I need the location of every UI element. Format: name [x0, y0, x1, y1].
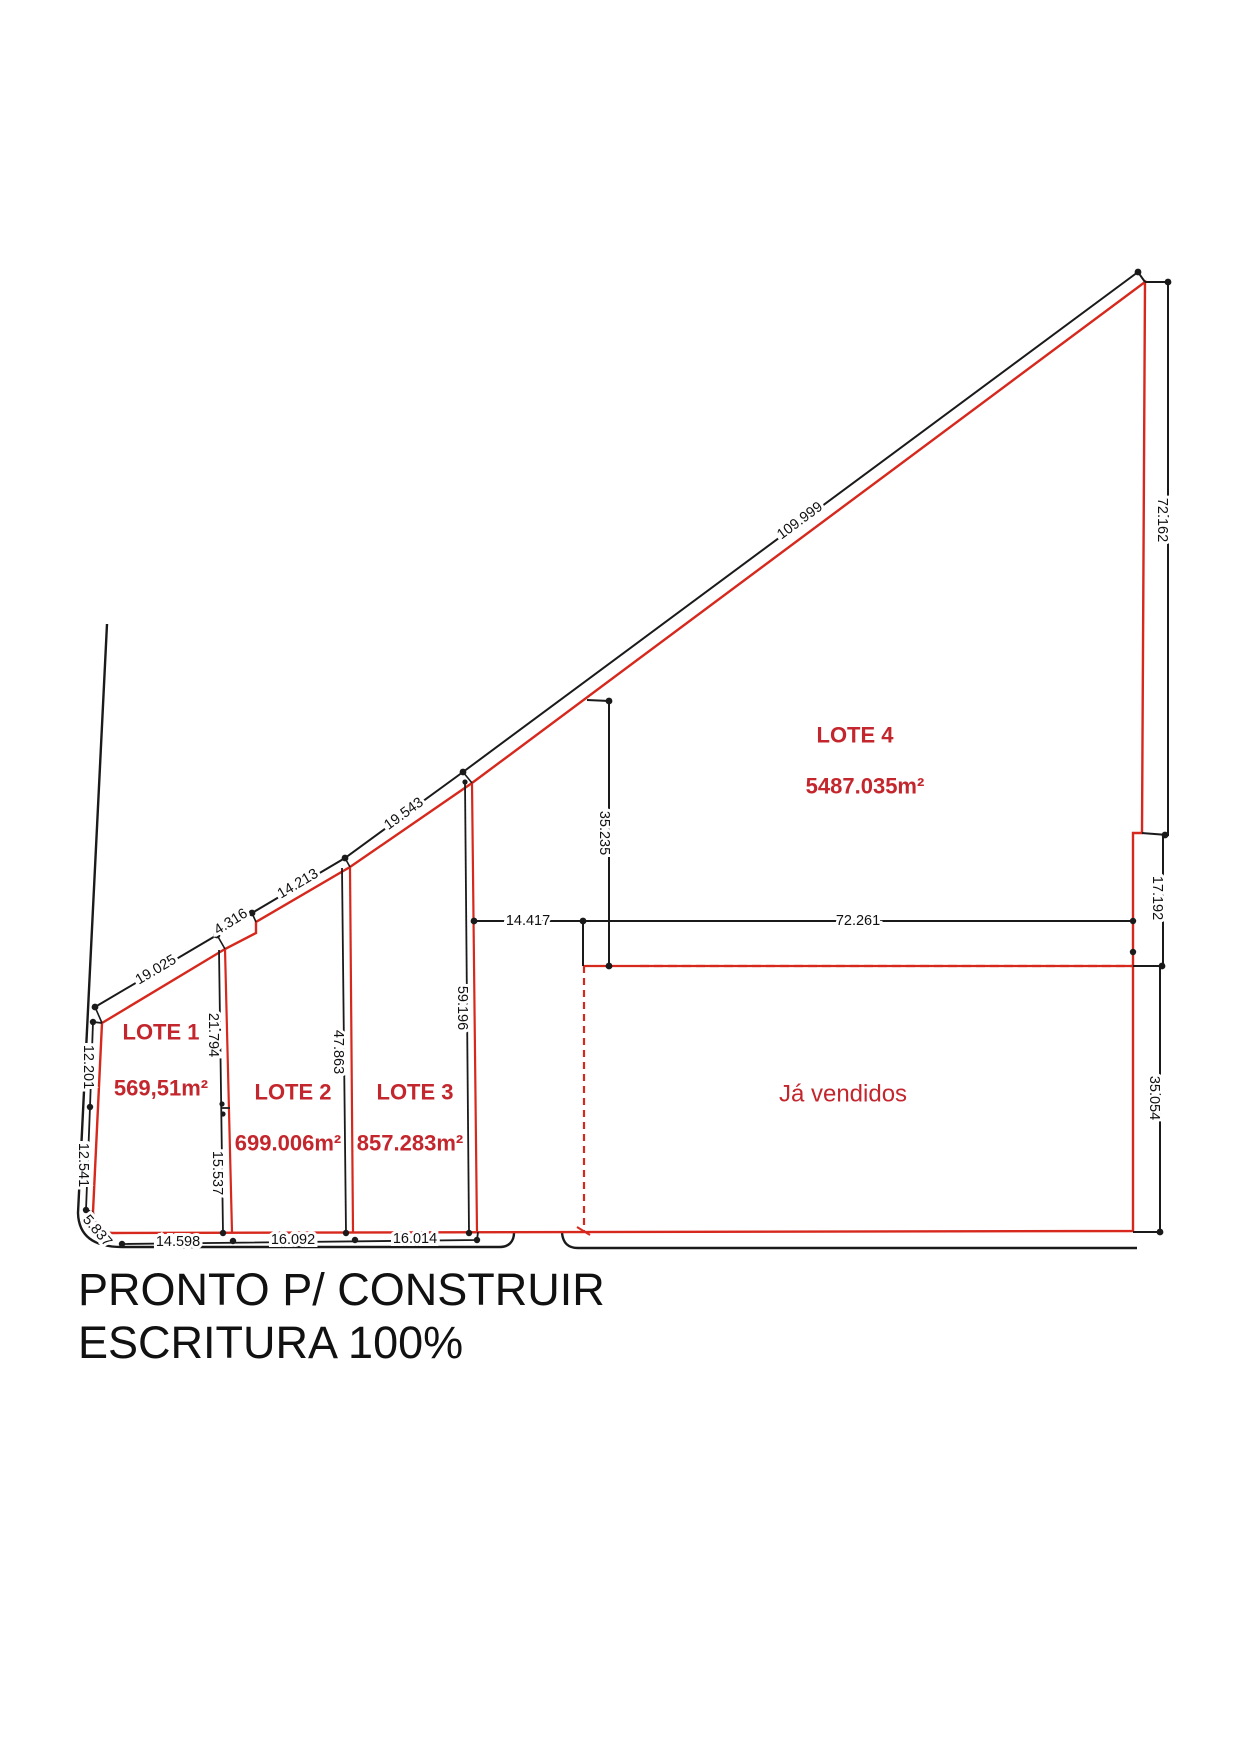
- vertex-dot: [90, 1019, 96, 1025]
- vertex-dot: [219, 1101, 224, 1106]
- vertex-dot: [249, 910, 256, 917]
- lote3-name: LOTE 3: [376, 1080, 453, 1105]
- sold-area-label: Já vendidos: [779, 1081, 907, 1108]
- vertex-dot: [606, 963, 613, 970]
- dim-street-front-3: 19.543: [381, 794, 426, 833]
- vertex-dot: [119, 1241, 125, 1247]
- dimline-street-front: [95, 272, 1145, 1007]
- vertex-dot: [606, 698, 613, 705]
- lote4-name: LOTE 4: [816, 723, 894, 748]
- vertex-dots: [83, 269, 1172, 1248]
- dim-bottom-1: 16.092: [271, 1232, 315, 1248]
- vertex-dot: [230, 1238, 236, 1244]
- dim-street-front-4: 109.999: [774, 499, 826, 543]
- lote4-area: 5487.035m²: [806, 774, 925, 799]
- dim-right-2: 35.054: [1146, 1076, 1162, 1120]
- dim-inner-0: 14.417: [506, 913, 550, 929]
- lote2-name: LOTE 2: [254, 1080, 331, 1105]
- survey-sheet: 19.025 4.316 14.213 19.543 109.999 72.16…: [0, 0, 1240, 1755]
- lote1-area: 569,51m²: [114, 1076, 208, 1101]
- dim-divider34: 59.196: [454, 986, 470, 1030]
- vertex-dot: [220, 1111, 225, 1116]
- dim-inner-1: 72.261: [836, 913, 880, 929]
- vertex-dot: [1130, 949, 1136, 955]
- dim-corner-arc: 5.837: [79, 1212, 115, 1250]
- vertex-dot: [580, 918, 587, 925]
- vertex-dot: [1130, 918, 1136, 924]
- dim-divider12-top: 21.794: [205, 1013, 221, 1057]
- dim-left-1: 12.541: [75, 1143, 91, 1187]
- lote3-area: 857.283m²: [357, 1131, 463, 1156]
- vertex-dot: [1165, 279, 1172, 286]
- vertex-dot: [1159, 963, 1166, 970]
- lote2-area: 699.006m²: [235, 1131, 341, 1156]
- vertex-dot: [466, 1230, 472, 1236]
- vertex-dot: [474, 1237, 480, 1243]
- divider-lote3-lote4: [472, 783, 477, 1232]
- vertex-dot: [1157, 1229, 1164, 1236]
- dim-street-front-0: 19.025: [133, 952, 179, 988]
- vertex-dot: [83, 1207, 89, 1213]
- footer-line2: ESCRITURA 100%: [78, 1317, 463, 1368]
- vertex-dot: [343, 1230, 349, 1236]
- dim-bottom-0: 14.598: [156, 1234, 200, 1250]
- parcel-boundary: [93, 282, 1145, 1233]
- vertex-dot: [220, 1230, 226, 1236]
- dim-divider23: 47.863: [330, 1030, 346, 1074]
- vertex-dot: [1135, 269, 1142, 276]
- dim-divider12-bot: 15.537: [209, 1151, 225, 1195]
- footer-line1: PRONTO P/ CONSTRUIR: [78, 1264, 605, 1315]
- dimline-inner-horizontal: [474, 921, 1133, 966]
- dim-left-0: 12.201: [80, 1045, 96, 1089]
- vertex-dot: [460, 769, 467, 776]
- vertex-dot: [1162, 832, 1169, 839]
- divider-lote2-lote3: [350, 867, 353, 1232]
- dim-right-0: 72.162: [1154, 498, 1170, 542]
- vertex-dot: [462, 779, 467, 784]
- vertex-dot: [342, 855, 349, 862]
- vertex-dot: [87, 1104, 93, 1110]
- dim-right-1: 17.192: [1149, 876, 1165, 920]
- dim-street-front-1: 4.316: [211, 906, 250, 939]
- vertex-dot: [352, 1237, 358, 1243]
- dimline-right-72: [1142, 282, 1168, 835]
- street-line-right: [562, 1233, 1137, 1248]
- survey-drawing: 19.025 4.316 14.213 19.543 109.999 72.16…: [0, 0, 1240, 1755]
- dim-bottom-2: 16.014: [393, 1231, 437, 1247]
- divider-lote1-lote2: [225, 949, 232, 1232]
- vertex-dot: [92, 1004, 99, 1011]
- vertex-dot: [471, 918, 478, 925]
- dim-lot4-left: 35.235: [596, 811, 612, 855]
- lote1-name: LOTE 1: [122, 1020, 199, 1045]
